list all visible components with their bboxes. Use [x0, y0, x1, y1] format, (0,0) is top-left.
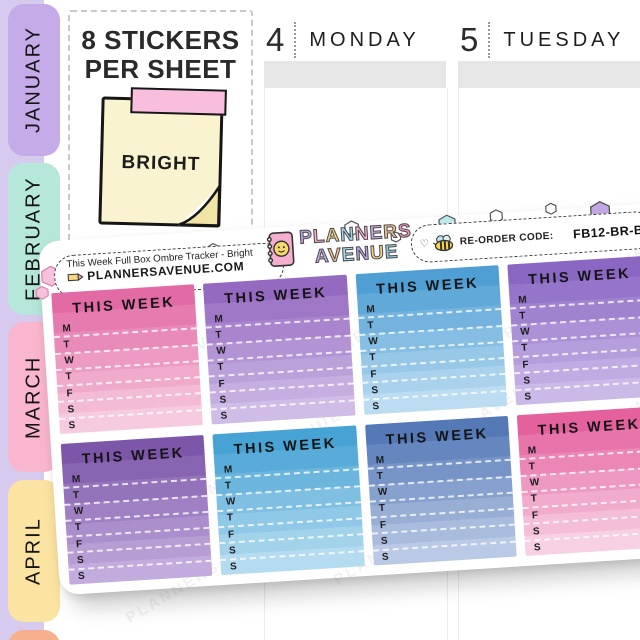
sticker-grid: THIS WEEKMTWTFSSTHIS WEEKMTWTFSSTHIS WEE…	[51, 256, 640, 585]
hexagon-icon	[35, 285, 50, 305]
bee-icon	[430, 233, 455, 251]
month-tab-label: APRIL	[8, 480, 60, 622]
reorder-label: RE-ORDER CODE:	[459, 230, 553, 247]
sticker-this-week-pink: THIS WEEKMTWTFSS	[51, 284, 203, 434]
monday-header-bar	[264, 61, 446, 88]
heart-icon: ♡	[420, 238, 430, 250]
brand-letter: A	[314, 246, 329, 268]
sticker-this-week-sky-blue: THIS WEEKMTWTFSS	[355, 265, 507, 415]
tuesday-date: 5	[460, 21, 478, 59]
month-tab-january: JANUARY	[8, 4, 60, 156]
sticker-this-week-steel-blue: THIS WEEKMTWTFSS	[365, 416, 517, 566]
brand-letter: E	[341, 244, 356, 266]
sticker-this-week-violet: THIS WEEKMTWTFSS	[507, 256, 640, 406]
page-curl-icon	[178, 184, 221, 227]
tape-icon	[130, 87, 227, 116]
monday-date: 4	[266, 21, 284, 59]
brand-letter: N	[340, 224, 356, 246]
brand-letter: P	[299, 227, 314, 249]
brand-letter: U	[370, 242, 386, 264]
brand-logo: PLANNERS AVENUE	[264, 222, 414, 271]
month-tab-label: JANUARY	[8, 4, 60, 156]
note-label: BRIGHT	[103, 151, 220, 176]
pencil-icon	[67, 272, 84, 282]
reorder-code: FB12-BR-B	[573, 223, 640, 241]
brand-letter: R	[383, 221, 399, 243]
tuesday-label: TUESDAY	[503, 29, 624, 52]
notebook-icon	[264, 230, 296, 269]
month-tab-label	[8, 630, 60, 640]
dotted-divider	[294, 22, 296, 58]
tuesday-header-bar	[458, 61, 640, 88]
sticker-count-heading: 8 STICKERS PER SHEET	[70, 26, 251, 84]
brand-line-avenue: AVENUE	[300, 241, 414, 268]
sticker-sheet: PLANNERS AVENUEPLANNERS AVENUEPLANNERS A…	[38, 202, 640, 595]
month-tab-april: APRIL	[8, 480, 60, 622]
sticker-count-line2: PER SHEET	[70, 55, 251, 84]
sticker-count-callout: 8 STICKERS PER SHEET BRIGHT	[68, 10, 253, 249]
brand-letter: N	[355, 243, 371, 265]
sticker-this-week-deep-purple: THIS WEEKMTWTFSS	[61, 435, 213, 585]
sticker-count-line1: 8 STICKERS	[70, 26, 251, 55]
product-image: JANUARY FEBRUARY MARCH APRIL 4 MONDAY 5 …	[0, 0, 640, 640]
brand-letter: S	[397, 221, 412, 243]
brand-name: PLANNERS AVENUE	[299, 222, 414, 269]
sticky-note: BRIGHT	[98, 96, 223, 227]
sticker-this-week-bright-pink: THIS WEEKMTWTFSS	[517, 406, 640, 556]
sticker-this-week-cyan-blue: THIS WEEKMTWTFSS	[213, 425, 365, 575]
monday-label: MONDAY	[309, 29, 419, 52]
brand-letter: E	[384, 241, 399, 263]
tuesday-heading: 5 TUESDAY	[460, 20, 624, 60]
brand-letter: A	[325, 225, 341, 247]
brand-letter: N	[354, 223, 370, 245]
sticker-this-week-purple: THIS WEEKMTWTFSS	[203, 275, 355, 425]
dotted-divider	[488, 22, 490, 58]
monday-heading: 4 MONDAY	[266, 20, 420, 60]
month-tab-next	[8, 630, 60, 640]
